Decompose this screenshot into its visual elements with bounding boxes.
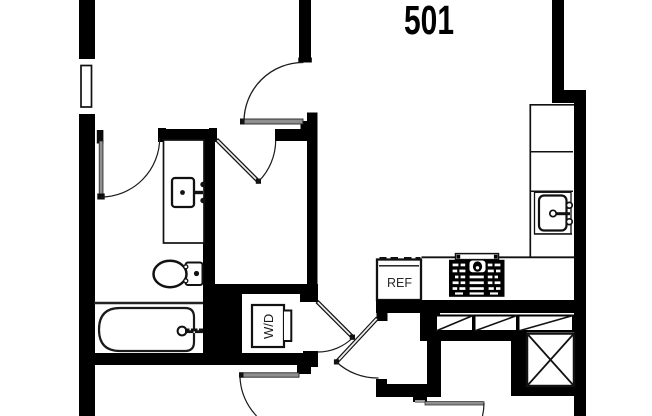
svg-text:REF: REF [387, 276, 412, 290]
svg-text:501: 501 [404, 0, 454, 43]
svg-text:W/D: W/D [261, 314, 276, 339]
